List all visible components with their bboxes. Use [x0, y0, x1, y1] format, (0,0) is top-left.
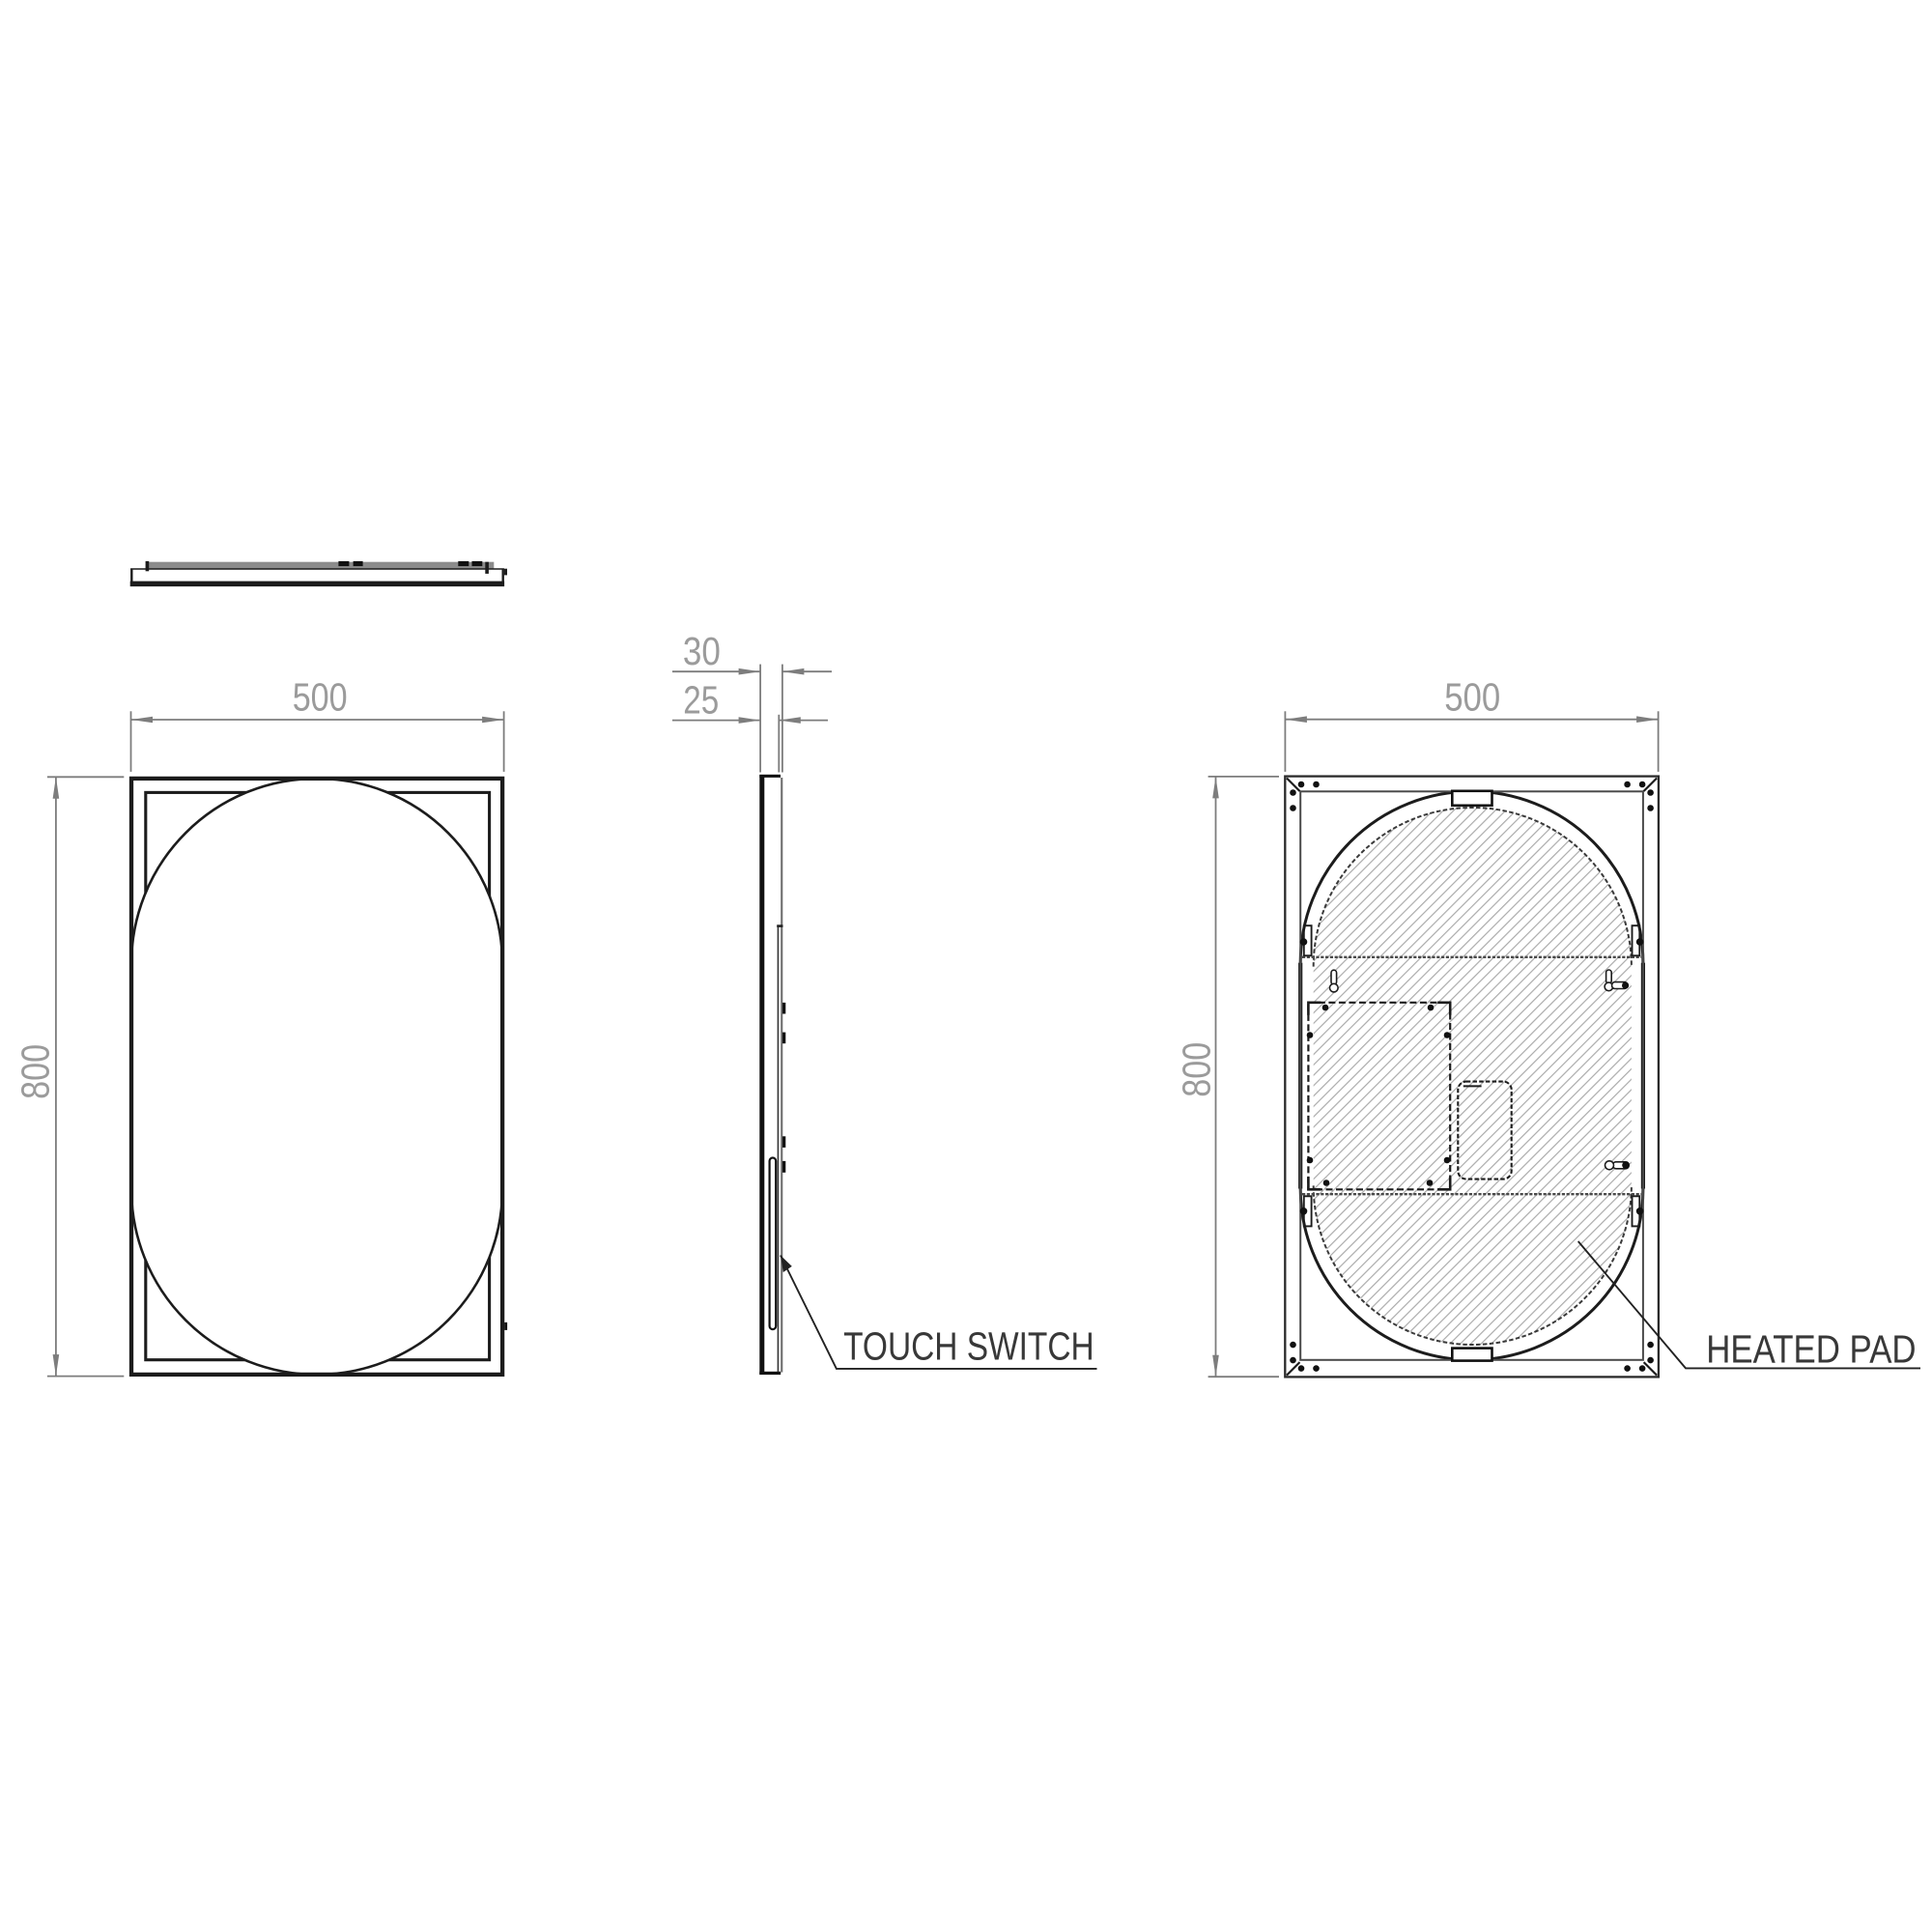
svg-text:TOUCH SWITCH: TOUCH SWITCH: [843, 1323, 1094, 1368]
svg-text:25: 25: [683, 678, 719, 723]
svg-text:HEATED PAD: HEATED PAD: [1706, 1326, 1916, 1371]
svg-text:500: 500: [293, 675, 348, 720]
svg-text:30: 30: [683, 629, 721, 673]
svg-text:800: 800: [13, 1044, 57, 1099]
svg-text:500: 500: [1444, 675, 1500, 720]
svg-text:800: 800: [1174, 1042, 1218, 1097]
